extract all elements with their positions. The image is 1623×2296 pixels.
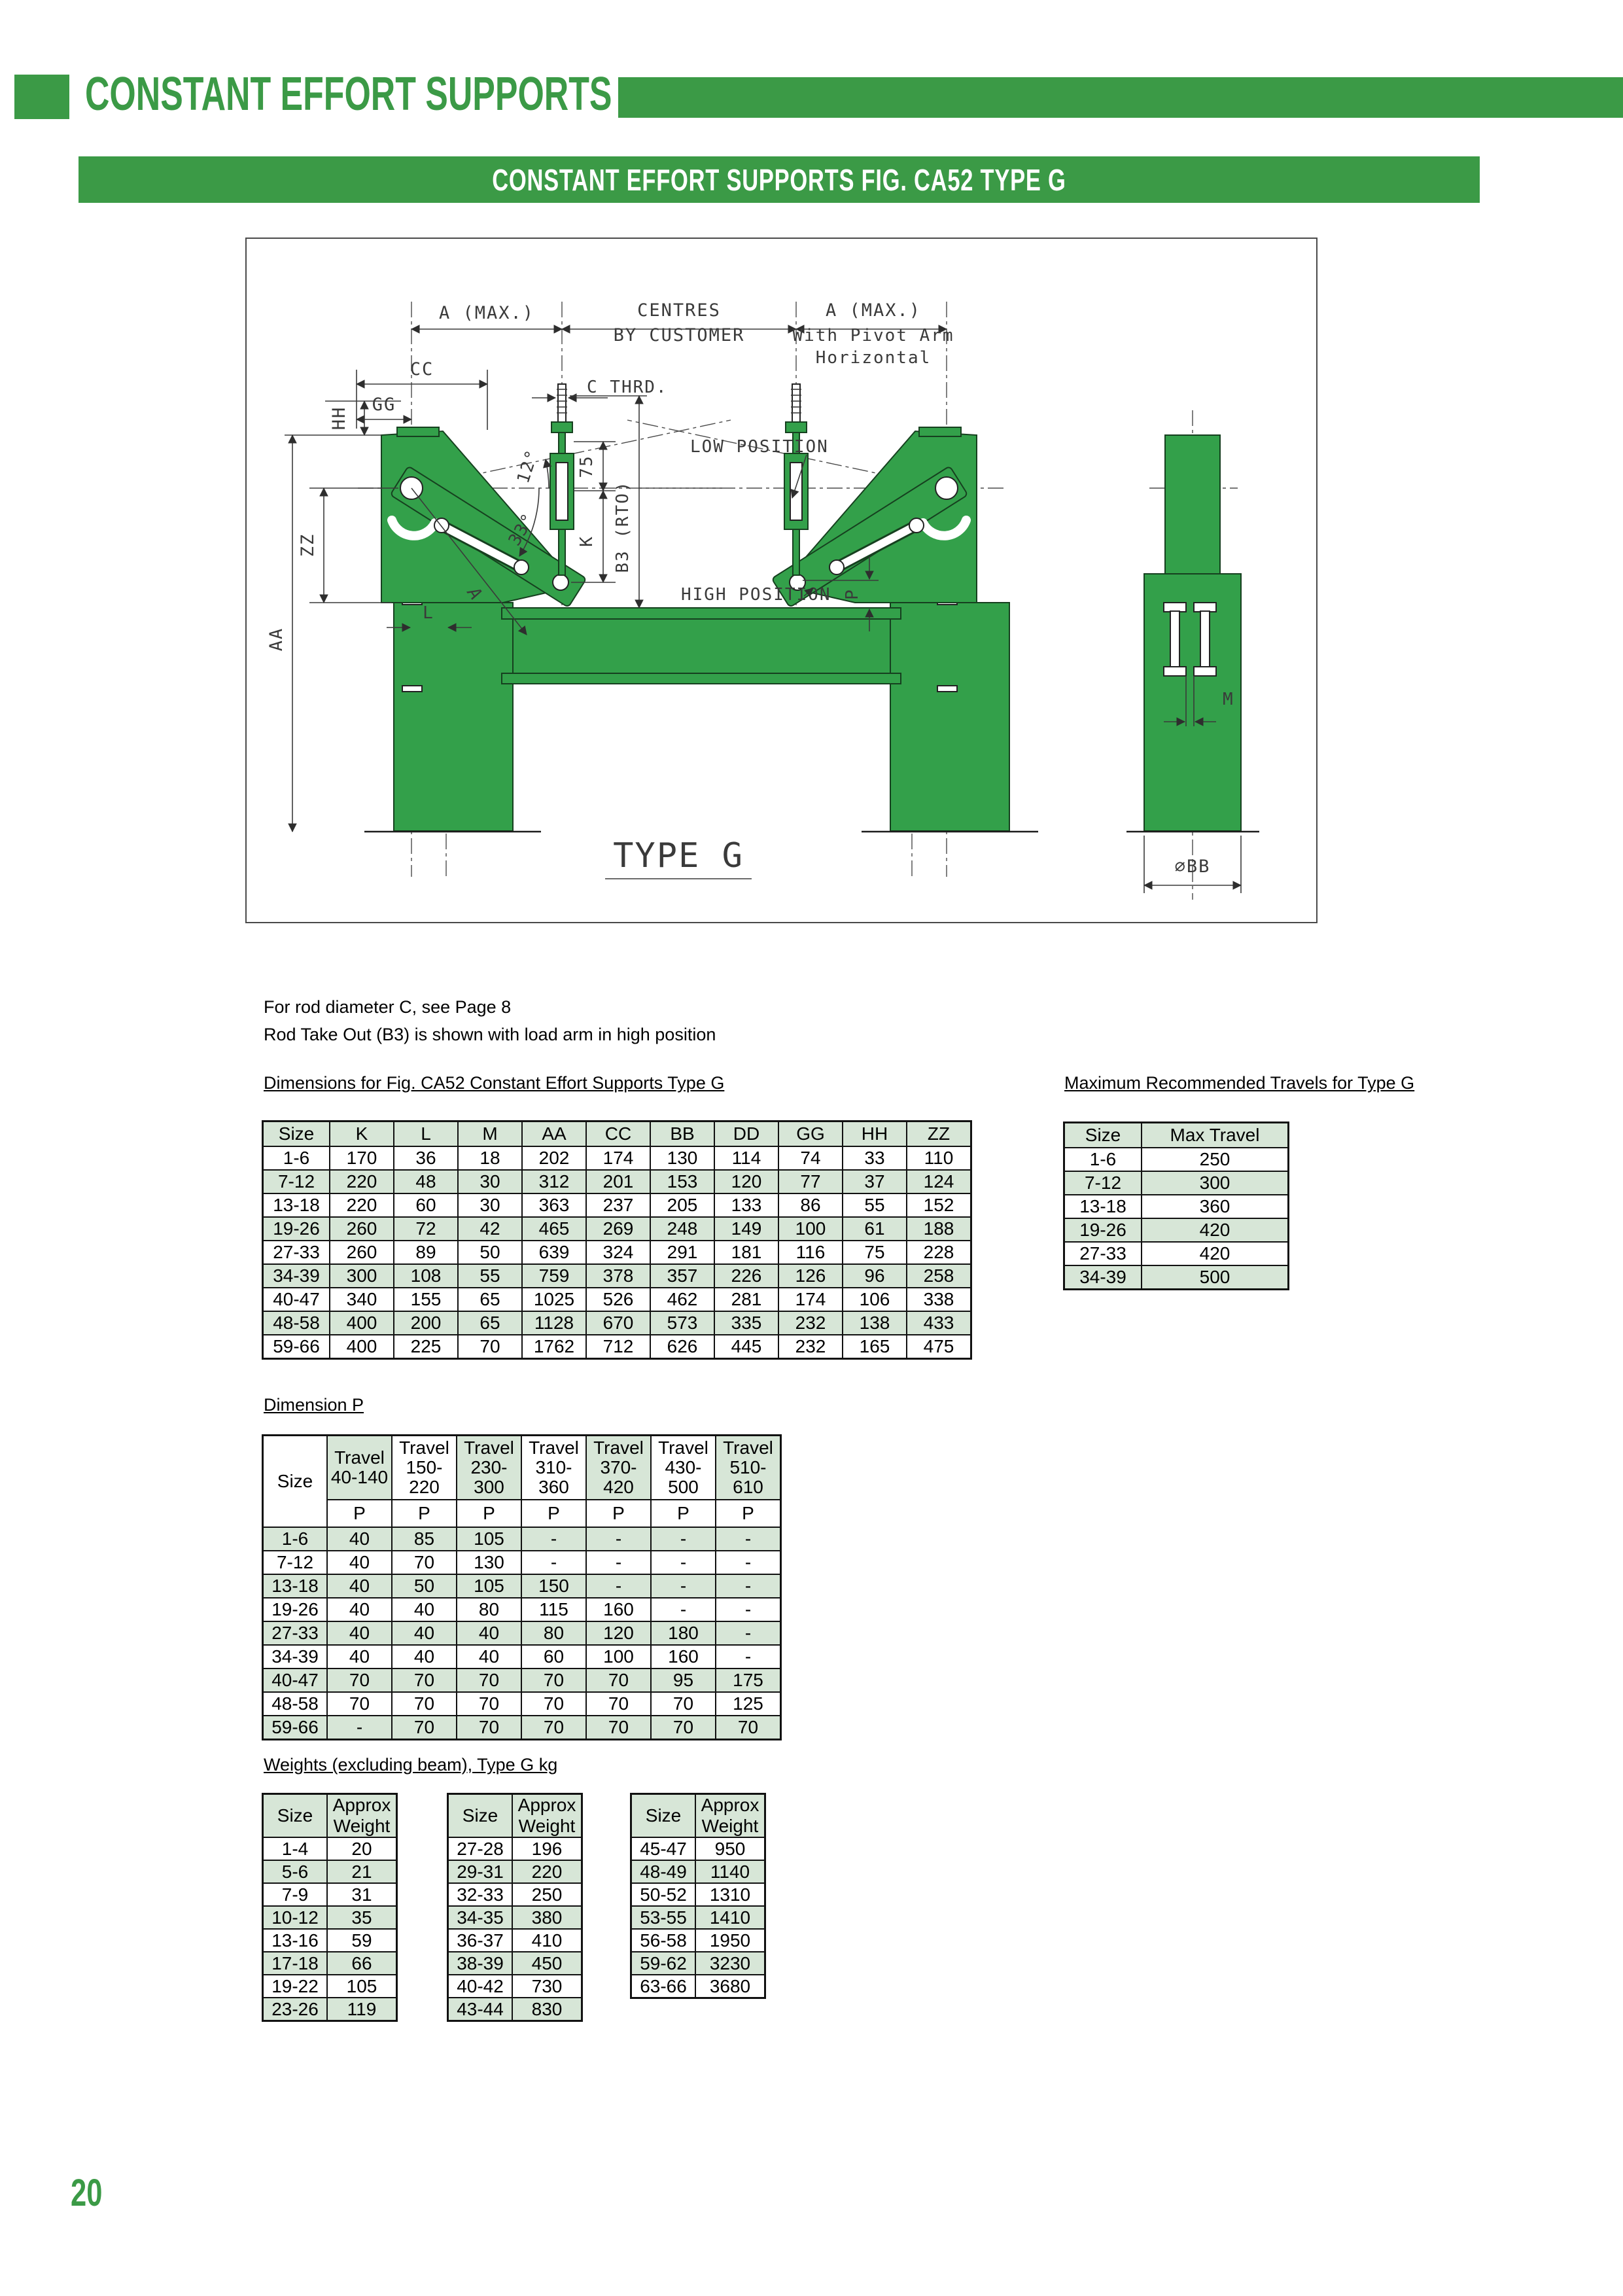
table-cell: 40-42 bbox=[448, 1975, 513, 1998]
table-cell: 324 bbox=[586, 1241, 650, 1264]
table-cell: GG bbox=[778, 1122, 843, 1147]
table-row: 1-6250 bbox=[1064, 1148, 1289, 1171]
sideview-upper bbox=[1165, 435, 1220, 575]
dim-b3: B3 (RTO) bbox=[613, 480, 633, 573]
table-cell: 60 bbox=[521, 1645, 586, 1669]
section-banner-label: CONSTANT EFFORT SUPPORTS FIG. CA52 TYPE … bbox=[492, 162, 1066, 198]
table-cell: 130 bbox=[457, 1551, 521, 1574]
table-cell: - bbox=[651, 1551, 716, 1574]
table-cell: 445 bbox=[714, 1335, 778, 1359]
dim-by-customer: BY CUSTOMER bbox=[614, 325, 745, 345]
table-cell: 70 bbox=[716, 1716, 781, 1740]
section-banner: CONSTANT EFFORT SUPPORTS FIG. CA52 TYPE … bbox=[79, 156, 1480, 203]
table-cell: 108 bbox=[394, 1264, 458, 1288]
travels-table-title: Maximum Recommended Travels for Type G bbox=[1064, 1073, 1414, 1093]
table-cell: 100 bbox=[778, 1217, 843, 1241]
table-cell: 357 bbox=[650, 1264, 714, 1288]
table-cell: 626 bbox=[650, 1335, 714, 1359]
table-header-row: SizeApprox Weight bbox=[448, 1794, 582, 1838]
table-cell: AA bbox=[522, 1122, 586, 1147]
page-title: CONSTANT EFFORT SUPPORTS bbox=[85, 68, 612, 120]
table-cell: 40 bbox=[327, 1527, 392, 1551]
table-cell: P bbox=[586, 1500, 651, 1527]
table-cell: 120 bbox=[586, 1621, 651, 1645]
table-cell: 31 bbox=[327, 1883, 397, 1906]
table-cell: 72 bbox=[394, 1217, 458, 1241]
table-cell: 7-12 bbox=[263, 1170, 330, 1193]
table-cell: 70 bbox=[651, 1692, 716, 1716]
table-cell: 50-52 bbox=[631, 1883, 696, 1906]
note-rod-takeout: Rod Take Out (B3) is shown with load arm… bbox=[264, 1025, 716, 1045]
table-cell: 70 bbox=[586, 1716, 651, 1740]
table-cell: 380 bbox=[512, 1906, 582, 1929]
table-cell: 420 bbox=[1142, 1242, 1289, 1265]
dim-m: M bbox=[1223, 690, 1234, 709]
table-cell: 291 bbox=[650, 1241, 714, 1264]
table-cell: 220 bbox=[330, 1170, 394, 1193]
table-cell: 56-58 bbox=[631, 1929, 696, 1952]
table-cell: 50 bbox=[458, 1241, 522, 1264]
table-row: 7-124070130---- bbox=[263, 1551, 781, 1574]
weld-mark bbox=[937, 686, 957, 692]
technical-drawing-frame: .grn{fill:#33a04a;stroke:#16401f;stroke-… bbox=[245, 238, 1318, 923]
table-cell: 250 bbox=[1142, 1148, 1289, 1171]
label-high-position: HIGH POSITION bbox=[681, 585, 831, 605]
dim-hh: HH bbox=[329, 406, 349, 431]
table-cell: 420 bbox=[1142, 1218, 1289, 1242]
weights-table-1: SizeApprox Weight1-4205-6217-93110-12351… bbox=[262, 1793, 398, 2022]
table-cell: 232 bbox=[778, 1311, 843, 1335]
table-cell: 170 bbox=[330, 1146, 394, 1170]
table-cell: 95 bbox=[651, 1669, 716, 1692]
beam-top-flange bbox=[502, 608, 901, 619]
table-row: 48-58707070707070125 bbox=[263, 1692, 781, 1716]
table-row: 50-521310 bbox=[631, 1883, 765, 1906]
table-cell: 125 bbox=[716, 1692, 781, 1716]
title-rule-bar bbox=[618, 77, 1623, 118]
dim-75: 75 bbox=[577, 455, 597, 478]
dim-k: K bbox=[577, 535, 597, 547]
table-cell: - bbox=[521, 1551, 586, 1574]
table-cell: 152 bbox=[907, 1193, 971, 1217]
table-cell: 133 bbox=[714, 1193, 778, 1217]
dim-cc: CC bbox=[410, 359, 434, 380]
dim-l: L bbox=[423, 603, 434, 623]
table-row: 36-37410 bbox=[448, 1929, 582, 1952]
note-rod-diameter: For rod diameter C, see Page 8 bbox=[264, 997, 511, 1017]
table-cell: 526 bbox=[586, 1288, 650, 1311]
table-row: 7-12300 bbox=[1064, 1171, 1289, 1195]
table-cell: 1-6 bbox=[263, 1527, 328, 1551]
table-cell: 43-44 bbox=[448, 1998, 513, 2021]
table-cell: 3230 bbox=[695, 1952, 765, 1975]
table-cell: 120 bbox=[714, 1170, 778, 1193]
table-cell: 7-9 bbox=[263, 1883, 328, 1906]
table-cell: 19-26 bbox=[263, 1598, 328, 1621]
table-cell: 89 bbox=[394, 1241, 458, 1264]
table-cell: 70 bbox=[521, 1669, 586, 1692]
table-cell: 19-22 bbox=[263, 1975, 328, 1998]
weights-title: Weights (excluding beam), Type G kg bbox=[264, 1755, 557, 1775]
table-cell: K bbox=[330, 1122, 394, 1147]
table-cell: 160 bbox=[586, 1598, 651, 1621]
table-cell: HH bbox=[843, 1122, 907, 1147]
table-cell: Approx Weight bbox=[695, 1794, 765, 1838]
dim-centres: CENTRES bbox=[637, 300, 721, 321]
table-cell: 248 bbox=[650, 1217, 714, 1241]
table-cell: 1128 bbox=[522, 1311, 586, 1335]
table-cell: - bbox=[716, 1551, 781, 1574]
table-row: 29-31220 bbox=[448, 1860, 582, 1883]
table-row: 34-39500 bbox=[1064, 1265, 1289, 1290]
table-cell: 34-39 bbox=[1064, 1265, 1142, 1290]
weights-table-2: SizeApprox Weight27-2819629-3122032-3325… bbox=[447, 1793, 583, 2022]
brand-square bbox=[14, 75, 69, 119]
table-cell: 32-33 bbox=[448, 1883, 513, 1906]
table-cell: 1310 bbox=[695, 1883, 765, 1906]
table-header-row: SizeKLMAACCBBDDGGHHZZ bbox=[263, 1122, 971, 1147]
table-cell: 70 bbox=[521, 1716, 586, 1740]
table-cell: 85 bbox=[392, 1527, 457, 1551]
table-cell: 70 bbox=[521, 1692, 586, 1716]
table-cell: 34-39 bbox=[263, 1645, 328, 1669]
table-cell: 360 bbox=[1142, 1195, 1289, 1218]
table-cell: 116 bbox=[778, 1241, 843, 1264]
dim-a-max-left: A (MAX.) bbox=[439, 303, 534, 323]
table-cell: 400 bbox=[330, 1335, 394, 1359]
table-cell: 60 bbox=[394, 1193, 458, 1217]
table-cell: 36 bbox=[394, 1146, 458, 1170]
table-row: 27-3340404080120180- bbox=[263, 1621, 781, 1645]
table-cell: 70 bbox=[586, 1669, 651, 1692]
table-cell: 115 bbox=[521, 1598, 586, 1621]
table-cell: 86 bbox=[778, 1193, 843, 1217]
table-cell: 40 bbox=[392, 1598, 457, 1621]
table-cell: 36-37 bbox=[448, 1929, 513, 1952]
table-cell: 269 bbox=[586, 1217, 650, 1241]
table-cell: 40 bbox=[327, 1598, 392, 1621]
table-cell: 70 bbox=[392, 1716, 457, 1740]
table-cell: 1140 bbox=[695, 1860, 765, 1883]
table-cell: 400 bbox=[330, 1311, 394, 1335]
table-cell: 10-12 bbox=[263, 1906, 328, 1929]
table-cell: 48-58 bbox=[263, 1311, 330, 1335]
table-row: 48-491140 bbox=[631, 1860, 765, 1883]
table-row: 13-1659 bbox=[263, 1929, 397, 1952]
table-cell: 188 bbox=[907, 1217, 971, 1241]
table-cell: 40 bbox=[327, 1574, 392, 1598]
table-cell: 55 bbox=[843, 1193, 907, 1217]
table-cell: 70 bbox=[327, 1669, 392, 1692]
table-cell: - bbox=[586, 1574, 651, 1598]
table-header-row: SizeMax Travel bbox=[1064, 1123, 1289, 1148]
table-cell: 27-28 bbox=[448, 1837, 513, 1860]
table-cell: 70 bbox=[457, 1692, 521, 1716]
table-cell: 258 bbox=[907, 1264, 971, 1288]
drawing-title: TYPE G bbox=[613, 836, 744, 875]
table-row: 19-22105 bbox=[263, 1975, 397, 1998]
technical-drawing: .grn{fill:#33a04a;stroke:#16401f;stroke-… bbox=[247, 239, 1316, 922]
table-cell: 63-66 bbox=[631, 1975, 696, 1998]
table-cell: Size bbox=[448, 1794, 513, 1838]
table-cell: 174 bbox=[778, 1288, 843, 1311]
dim-pivot-arm-2: Horizontal bbox=[816, 348, 932, 368]
table-cell: 225 bbox=[394, 1335, 458, 1359]
table-cell: 300 bbox=[1142, 1171, 1289, 1195]
table-cell: 55 bbox=[458, 1264, 522, 1288]
table-cell: 500 bbox=[1142, 1265, 1289, 1290]
table-row: 19-26260724246526924814910061188 bbox=[263, 1217, 971, 1241]
table-cell: 19-26 bbox=[263, 1217, 330, 1241]
table-cell: 34-39 bbox=[263, 1264, 330, 1288]
table-cell: 335 bbox=[714, 1311, 778, 1335]
table-cell: 7-12 bbox=[1064, 1171, 1142, 1195]
table-cell: 29-31 bbox=[448, 1860, 513, 1883]
table-row: 1-617036182021741301147433110 bbox=[263, 1146, 971, 1170]
table-cell: 40 bbox=[327, 1551, 392, 1574]
rod-lower bbox=[559, 529, 565, 575]
table-cell: - bbox=[521, 1527, 586, 1551]
table-cell: M bbox=[458, 1122, 522, 1147]
table-cell: 30 bbox=[458, 1170, 522, 1193]
table-cell: 250 bbox=[512, 1883, 582, 1906]
table-row: 17-1866 bbox=[263, 1952, 397, 1975]
table-cell: - bbox=[716, 1598, 781, 1621]
dim-gg: GG bbox=[372, 395, 396, 415]
rod-upper bbox=[559, 433, 565, 453]
table-row: 27-28196 bbox=[448, 1837, 582, 1860]
table-row: 63-663680 bbox=[631, 1975, 765, 1998]
table-cell: 70 bbox=[392, 1669, 457, 1692]
table-cell: 27-33 bbox=[263, 1621, 328, 1645]
beam-bottom-flange bbox=[502, 673, 901, 684]
table-cell: 475 bbox=[907, 1335, 971, 1359]
table-cell: 100 bbox=[586, 1645, 651, 1669]
table-cell: 38-39 bbox=[448, 1952, 513, 1975]
table-cell: - bbox=[651, 1598, 716, 1621]
table-cell: 40 bbox=[327, 1621, 392, 1645]
table-cell: 573 bbox=[650, 1311, 714, 1335]
table-cell: 59-66 bbox=[263, 1716, 328, 1740]
dim-pivot-arm-1: With Pivot Arm bbox=[792, 326, 954, 345]
table-cell: 433 bbox=[907, 1311, 971, 1335]
table-cell: 74 bbox=[778, 1146, 843, 1170]
dimension-p-table: SizeTravel 40-140Travel 150- 220Travel 2… bbox=[262, 1434, 782, 1740]
table-cell: - bbox=[327, 1716, 392, 1740]
table-cell: 1762 bbox=[522, 1335, 586, 1359]
travels-table: SizeMax Travel1-62507-1230013-1836019-26… bbox=[1063, 1122, 1289, 1290]
table-row: 1-64085105---- bbox=[263, 1527, 781, 1551]
table-row: 59-66400225701762712626445232165475 bbox=[263, 1335, 971, 1359]
table-row: 34-3940404060100160- bbox=[263, 1645, 781, 1669]
table-cell: 340 bbox=[330, 1288, 394, 1311]
table-cell: 410 bbox=[512, 1929, 582, 1952]
table-cell: 42 bbox=[458, 1217, 522, 1241]
dimensions-table: SizeKLMAACCBBDDGGHHZZ1-61703618202174130… bbox=[262, 1120, 972, 1360]
dim-aa: AA bbox=[266, 627, 287, 652]
table-cell: 13-18 bbox=[1064, 1195, 1142, 1218]
table-subheader-row: PPPPPPP bbox=[263, 1500, 781, 1527]
dim-a-max-right: A (MAX.) bbox=[826, 300, 921, 321]
table-cell: ZZ bbox=[907, 1122, 971, 1147]
table-cell: - bbox=[651, 1527, 716, 1551]
table-cell: 59 bbox=[327, 1929, 397, 1952]
table-cell: 149 bbox=[714, 1217, 778, 1241]
table-cell: - bbox=[716, 1574, 781, 1598]
table-cell: 70 bbox=[392, 1551, 457, 1574]
table-cell: 106 bbox=[843, 1288, 907, 1311]
table-cell: 174 bbox=[586, 1146, 650, 1170]
table-cell: 13-16 bbox=[263, 1929, 328, 1952]
table-cell: 19-26 bbox=[1064, 1218, 1142, 1242]
table-cell: - bbox=[716, 1527, 781, 1551]
table-cell: 50 bbox=[392, 1574, 457, 1598]
table-cell: 80 bbox=[521, 1621, 586, 1645]
table-cell: - bbox=[716, 1645, 781, 1669]
table-row: 34-35380 bbox=[448, 1906, 582, 1929]
table-cell: 70 bbox=[392, 1692, 457, 1716]
table-cell: 237 bbox=[586, 1193, 650, 1217]
table-cell: 33 bbox=[843, 1146, 907, 1170]
table-cell: Approx Weight bbox=[327, 1794, 397, 1838]
table-row: 45-47950 bbox=[631, 1837, 765, 1860]
table-cell: Travel 430- 500 bbox=[651, 1436, 716, 1500]
table-cell: 119 bbox=[327, 1998, 397, 2021]
bracket-tab bbox=[397, 427, 439, 436]
table-row: 34-393001085575937835722612696258 bbox=[263, 1264, 971, 1288]
table-cell: 1950 bbox=[695, 1929, 765, 1952]
dim-zz: ZZ bbox=[298, 533, 318, 557]
table-cell: 75 bbox=[843, 1241, 907, 1264]
table-row: 13-1822060303632372051338655152 bbox=[263, 1193, 971, 1217]
table-cell: P bbox=[457, 1500, 521, 1527]
table-cell: P bbox=[716, 1500, 781, 1527]
table-cell: 153 bbox=[650, 1170, 714, 1193]
table-cell: 759 bbox=[522, 1264, 586, 1288]
table-row: 13-184050105150--- bbox=[263, 1574, 781, 1598]
table-cell: 30 bbox=[458, 1193, 522, 1217]
table-cell: 1-4 bbox=[263, 1837, 328, 1860]
table-cell: 59-62 bbox=[631, 1952, 696, 1975]
table-cell: 130 bbox=[650, 1146, 714, 1170]
table-cell: 27-33 bbox=[1064, 1242, 1142, 1265]
table-cell: 48-49 bbox=[631, 1860, 696, 1883]
table-cell: 13-18 bbox=[263, 1574, 328, 1598]
table-cell: 45-47 bbox=[631, 1837, 696, 1860]
table-cell: 40-47 bbox=[263, 1288, 330, 1311]
table-cell: 105 bbox=[327, 1975, 397, 1998]
weights-table-3: SizeApprox Weight45-4795048-49114050-521… bbox=[630, 1793, 766, 1999]
support-column-left bbox=[394, 603, 513, 831]
table-cell: 260 bbox=[330, 1217, 394, 1241]
table-cell: 730 bbox=[512, 1975, 582, 1998]
table-cell: 124 bbox=[907, 1170, 971, 1193]
table-cell: 201 bbox=[586, 1170, 650, 1193]
table-cell: 65 bbox=[458, 1311, 522, 1335]
weld-mark bbox=[402, 686, 422, 692]
table-cell: 96 bbox=[843, 1264, 907, 1288]
table-cell: Size bbox=[263, 1122, 330, 1147]
table-cell: Travel 370- 420 bbox=[586, 1436, 651, 1500]
table-cell: Travel 230- 300 bbox=[457, 1436, 521, 1500]
table-cell: P bbox=[327, 1500, 392, 1527]
table-cell: 155 bbox=[394, 1288, 458, 1311]
table-cell: 165 bbox=[843, 1335, 907, 1359]
table-cell: Max Travel bbox=[1142, 1123, 1289, 1148]
table-cell: CC bbox=[586, 1122, 650, 1147]
table-row: 19-26420 bbox=[1064, 1218, 1289, 1242]
page-number: 20 bbox=[71, 2171, 102, 2215]
table-cell: 5-6 bbox=[263, 1860, 328, 1883]
table-cell: 181 bbox=[714, 1241, 778, 1264]
table-cell: - bbox=[716, 1621, 781, 1645]
table-cell: 35 bbox=[327, 1906, 397, 1929]
table-cell: Size bbox=[263, 1794, 328, 1838]
table-cell: Approx Weight bbox=[512, 1794, 582, 1838]
table-cell: 465 bbox=[522, 1217, 586, 1241]
label-low-position: LOW POSITION bbox=[690, 437, 829, 457]
table-cell: 830 bbox=[512, 1998, 582, 2021]
table-row: 27-33260895063932429118111675228 bbox=[263, 1241, 971, 1264]
table-cell: BB bbox=[650, 1122, 714, 1147]
table-row: 5-621 bbox=[263, 1860, 397, 1883]
table-cell: 1-6 bbox=[263, 1146, 330, 1170]
table-cell: 70 bbox=[457, 1669, 521, 1692]
table-cell: 7-12 bbox=[263, 1551, 328, 1574]
table-row: 13-18360 bbox=[1064, 1195, 1289, 1218]
table-cell: P bbox=[651, 1500, 716, 1527]
table-row: 59-623230 bbox=[631, 1952, 765, 1975]
table-cell: 180 bbox=[651, 1621, 716, 1645]
table-row: 10-1235 bbox=[263, 1906, 397, 1929]
table-cell: 226 bbox=[714, 1264, 778, 1288]
table-cell: DD bbox=[714, 1122, 778, 1147]
table-cell: 13-18 bbox=[263, 1193, 330, 1217]
table-cell: - bbox=[651, 1574, 716, 1598]
table-cell: Size bbox=[631, 1794, 696, 1838]
table-cell: - bbox=[586, 1527, 651, 1551]
table-row: 19-26404080115160-- bbox=[263, 1598, 781, 1621]
table-cell: 59-66 bbox=[263, 1335, 330, 1359]
table-cell: 220 bbox=[330, 1193, 394, 1217]
table-cell: 61 bbox=[843, 1217, 907, 1241]
table-cell: 1-6 bbox=[1064, 1148, 1142, 1171]
table-cell: 70 bbox=[327, 1692, 392, 1716]
beam-web bbox=[513, 619, 890, 673]
table-header-row: SizeApprox Weight bbox=[631, 1794, 765, 1838]
table-cell: 281 bbox=[714, 1288, 778, 1311]
table-cell: 40 bbox=[392, 1645, 457, 1669]
table-cell: 950 bbox=[695, 1837, 765, 1860]
support-column-right bbox=[890, 603, 1009, 831]
dimensions-table-title: Dimensions for Fig. CA52 Constant Effort… bbox=[264, 1073, 724, 1093]
table-row: 7-1222048303122011531207737124 bbox=[263, 1170, 971, 1193]
table-cell: 114 bbox=[714, 1146, 778, 1170]
table-cell: 450 bbox=[512, 1952, 582, 1975]
table-row: 53-551410 bbox=[631, 1906, 765, 1929]
turnbuckle-slot bbox=[556, 463, 568, 520]
table-cell: 300 bbox=[330, 1264, 394, 1288]
table-cell: 196 bbox=[512, 1837, 582, 1860]
table-cell: - bbox=[586, 1551, 651, 1574]
table-cell: 80 bbox=[457, 1598, 521, 1621]
assembly-right bbox=[772, 384, 977, 607]
table-cell: 27-33 bbox=[263, 1241, 330, 1264]
table-cell: 1025 bbox=[522, 1288, 586, 1311]
table-cell: 639 bbox=[522, 1241, 586, 1264]
table-cell: 21 bbox=[327, 1860, 397, 1883]
dimension-p-title: Dimension P bbox=[264, 1395, 364, 1415]
